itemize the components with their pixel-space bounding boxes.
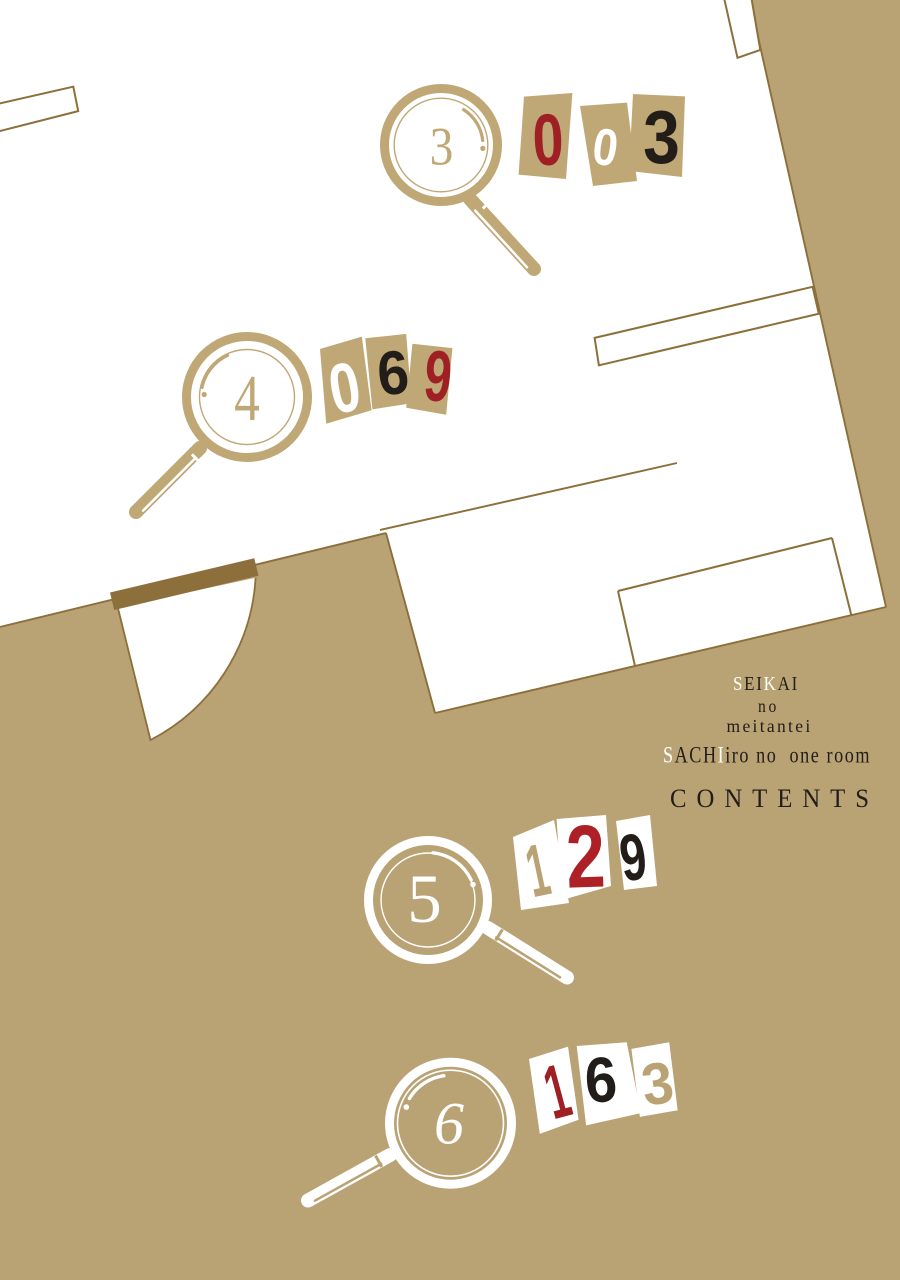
svg-text:2: 2 [564, 805, 607, 906]
svg-text:CONTENTS: CONTENTS [670, 784, 879, 813]
svg-text:no: no [758, 696, 779, 716]
svg-text:3: 3 [430, 118, 454, 177]
svg-text:3: 3 [643, 95, 680, 179]
svg-text:0: 0 [531, 98, 565, 181]
svg-text:SEIKAI: SEIKAI [733, 674, 799, 695]
svg-text:6: 6 [434, 1091, 464, 1157]
svg-text:4: 4 [234, 361, 260, 435]
svg-text:SACHIiro no one room: SACHIiro no one room [663, 743, 871, 769]
svg-text:meitantei: meitantei [727, 716, 813, 736]
svg-text:5: 5 [407, 861, 442, 937]
svg-text:6: 6 [374, 336, 411, 409]
svg-text:6: 6 [582, 1043, 619, 1117]
